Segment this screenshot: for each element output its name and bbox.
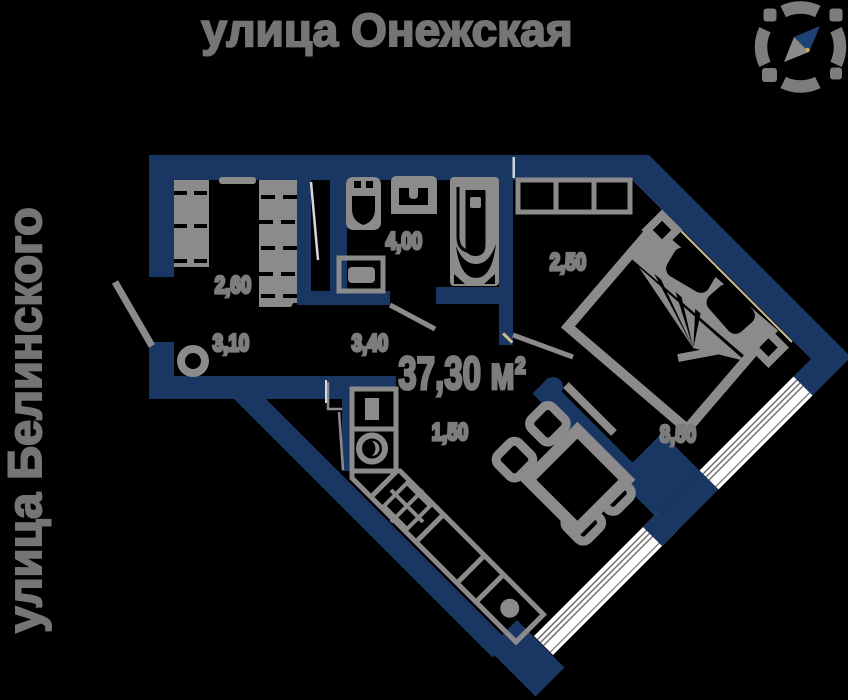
svg-text:3,40: 3,40 <box>352 330 388 357</box>
svg-text:2,50: 2,50 <box>550 249 586 276</box>
svg-text:4,00: 4,00 <box>386 228 422 255</box>
svg-text:1,50: 1,50 <box>432 419 468 446</box>
svg-text:2,60: 2,60 <box>215 272 251 299</box>
svg-text:8,50: 8,50 <box>660 421 696 448</box>
svg-text:3,10: 3,10 <box>213 330 249 357</box>
svg-text:улица Белинского: улица Белинского <box>0 207 51 632</box>
svg-text:улица Онежская: улица Онежская <box>201 4 572 56</box>
svg-text:37,30 м²: 37,30 м² <box>398 349 526 399</box>
